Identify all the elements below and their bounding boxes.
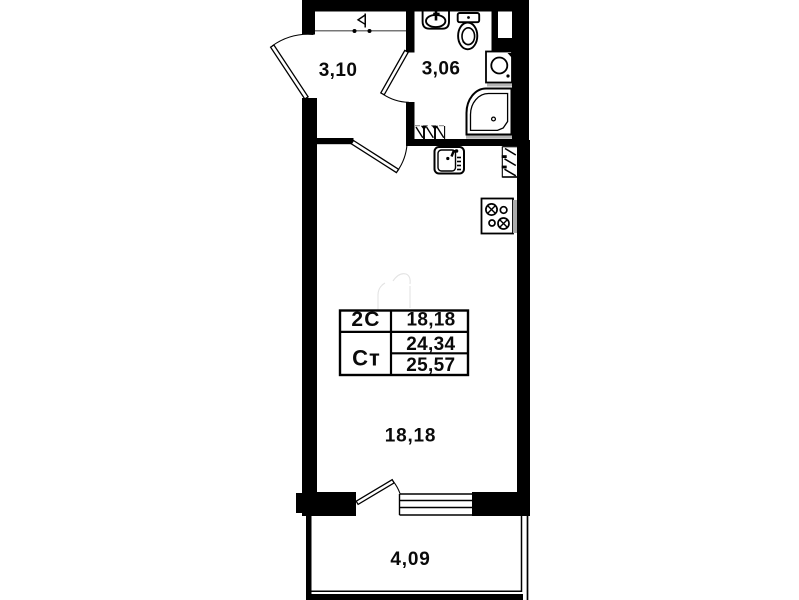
svg-text:3,10: 3,10 xyxy=(319,60,358,81)
svg-text:18,18: 18,18 xyxy=(406,310,455,331)
svg-text:Ст: Ст xyxy=(352,346,381,371)
svg-text:2С: 2С xyxy=(351,308,380,331)
svg-text:25,57: 25,57 xyxy=(406,355,455,376)
svg-text:24,34: 24,34 xyxy=(406,334,455,355)
svg-text:18,18: 18,18 xyxy=(385,426,437,447)
svg-text:3,06: 3,06 xyxy=(422,59,461,80)
svg-text:4,09: 4,09 xyxy=(390,549,430,570)
